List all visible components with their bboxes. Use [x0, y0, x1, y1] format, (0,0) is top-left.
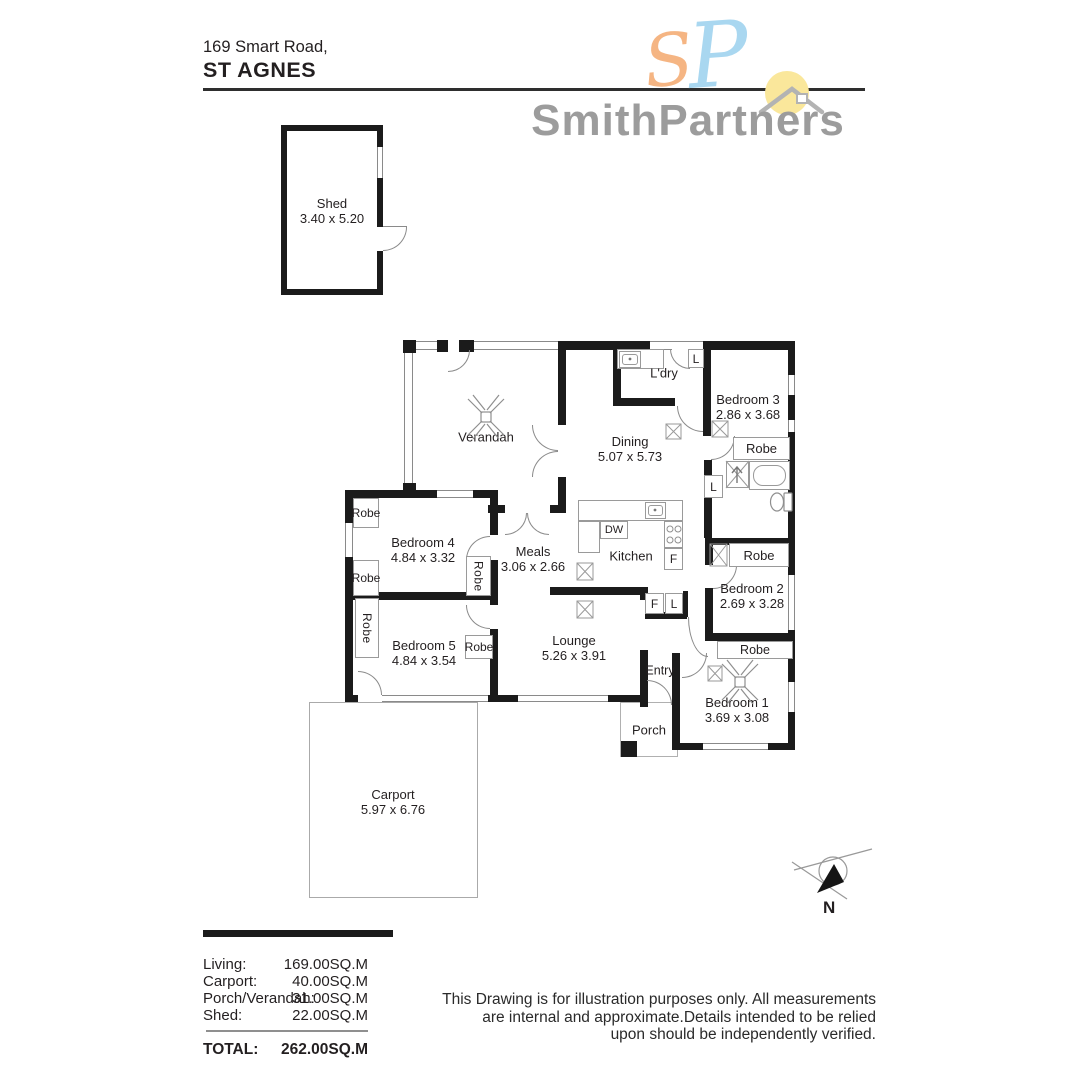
- door-swing: [383, 227, 407, 251]
- wall: [788, 341, 795, 375]
- window: [788, 575, 795, 630]
- wall: [608, 695, 648, 702]
- room-label-bedroom1: Bedroom 13.69 x 3.08: [705, 695, 769, 725]
- area-row: Shed:22.00SQ.M: [203, 1007, 368, 1024]
- window: [345, 523, 353, 557]
- door-swing: [466, 605, 490, 629]
- verandah-post: [403, 340, 416, 353]
- room-label-porch: Porch: [632, 723, 666, 738]
- area-row: Living:169.00SQ.M: [203, 956, 368, 973]
- room-label-bedroom4: Bedroom 44.84 x 3.32: [391, 535, 455, 565]
- room-label-bedroom2: Bedroom 22.69 x 3.28: [720, 581, 784, 611]
- window: [788, 420, 795, 432]
- room-label-meals: Meals3.06 x 2.66: [501, 544, 565, 574]
- door-swing: [448, 350, 470, 372]
- door-swing: [711, 436, 735, 460]
- verandah-screen-wall: [474, 341, 558, 350]
- robe-bedroom4-right: Robe: [466, 556, 491, 596]
- total-divider: [206, 1030, 368, 1032]
- wall: [377, 251, 383, 295]
- address-line: 169 Smart Road,: [203, 38, 328, 57]
- laundry-trough-bowl: [622, 354, 638, 365]
- wall: [683, 591, 688, 617]
- logo-monogram-p: P: [685, 16, 751, 96]
- verandah-screen-wall: [414, 341, 438, 350]
- wall: [788, 395, 795, 420]
- dishwasher: DW: [600, 521, 628, 539]
- wall: [550, 505, 566, 513]
- room-label-dining: Dining5.07 x 5.73: [598, 434, 662, 464]
- room-label-entry: Entry: [645, 664, 674, 679]
- room-label-kitchen: Kitchen: [609, 549, 652, 564]
- door-swing: [532, 451, 558, 477]
- door-swing: [532, 425, 558, 451]
- room-label-carport: Carport5.97 x 6.76: [361, 787, 425, 817]
- wall: [704, 497, 712, 538]
- bathtub-inner: [753, 465, 786, 486]
- footer-bar: [203, 930, 393, 937]
- floorplan-page: 169 Smart Road, ST AGNES S P SmithPartne…: [0, 0, 1080, 1080]
- robe-bedroom5-right: Robe: [465, 635, 493, 659]
- window: [788, 682, 795, 712]
- robe-bedroom1: Robe: [717, 641, 793, 659]
- fridge-space: F: [664, 548, 683, 570]
- window: [788, 375, 795, 395]
- door-swing: [505, 513, 527, 535]
- wall: [490, 560, 498, 605]
- wall: [281, 289, 383, 295]
- door-swing: [358, 671, 382, 695]
- verandah-screen-wall: [404, 353, 413, 483]
- area-row: Porch/Verandah:31.00SQ.M: [203, 990, 368, 1007]
- robe-bedroom4-left: Robe: [353, 560, 379, 596]
- shower: [726, 461, 749, 488]
- wall: [705, 545, 713, 565]
- window: [703, 743, 768, 750]
- linen-cupboard: L: [688, 349, 704, 368]
- wall: [473, 490, 498, 498]
- wall: [705, 633, 795, 641]
- door-swing: [688, 617, 708, 657]
- wall: [377, 125, 383, 147]
- kitchen-sink-bowl: [648, 505, 663, 516]
- porch-pillar: [621, 741, 637, 757]
- window: [518, 695, 608, 702]
- wall: [703, 341, 711, 436]
- compass-icon: [792, 849, 872, 899]
- robe-bedroom2: Robe: [729, 543, 789, 567]
- wall: [550, 587, 648, 595]
- wall: [345, 490, 437, 498]
- door-swing: [527, 513, 549, 535]
- verandah-post: [403, 483, 416, 496]
- wall: [768, 743, 795, 750]
- north-label: N: [823, 898, 835, 918]
- wall: [345, 695, 358, 702]
- verandah-post: [437, 340, 448, 352]
- wall: [281, 125, 287, 295]
- wall: [281, 125, 383, 131]
- room-label-ldry: L'dry: [650, 366, 678, 381]
- area-row: Carport:40.00SQ.M: [203, 973, 368, 990]
- wall: [613, 398, 675, 406]
- window: [377, 147, 383, 178]
- total-row: TOTAL: 262.00SQ.M: [203, 1041, 368, 1059]
- kitchen-bench-return: [578, 521, 600, 553]
- window: [437, 490, 473, 498]
- fridge-space: F: [645, 593, 664, 614]
- door-swing: [677, 406, 703, 432]
- kitchen-bench: [578, 500, 683, 521]
- room-label-bedroom5: Bedroom 54.84 x 3.54: [392, 638, 456, 668]
- plan-symbols: [0, 0, 1080, 1080]
- disclaimer: This Drawing is for illustration purpose…: [436, 991, 876, 1044]
- room-label-lounge: Lounge5.26 x 3.91: [542, 633, 606, 663]
- wall: [490, 498, 498, 535]
- cooktop: [664, 521, 683, 548]
- robe-bedroom4-corner: Robe: [353, 498, 379, 528]
- wall: [558, 349, 566, 425]
- brand-name: SmithPartners: [531, 96, 845, 146]
- linen-cupboard: L: [704, 475, 723, 498]
- door-swing: [682, 653, 707, 678]
- wall: [704, 460, 712, 475]
- robe-bedroom3: Robe: [733, 437, 790, 460]
- opening-line: [672, 341, 703, 342]
- room-label-verandah: Verandah: [458, 430, 514, 445]
- door-leaf: [383, 226, 407, 227]
- door-swing: [647, 680, 672, 705]
- linen-cupboard: L: [665, 593, 683, 614]
- wall: [703, 341, 795, 350]
- room-label-bedroom3: Bedroom 32.86 x 3.68: [716, 392, 780, 422]
- robe-bedroom5-left: Robe: [355, 598, 379, 658]
- window: [382, 695, 488, 702]
- header-rule: [203, 88, 865, 91]
- room-label-shed: Shed3.40 x 5.20: [300, 196, 364, 226]
- suburb-title: ST AGNES: [203, 58, 316, 83]
- wall: [377, 178, 383, 227]
